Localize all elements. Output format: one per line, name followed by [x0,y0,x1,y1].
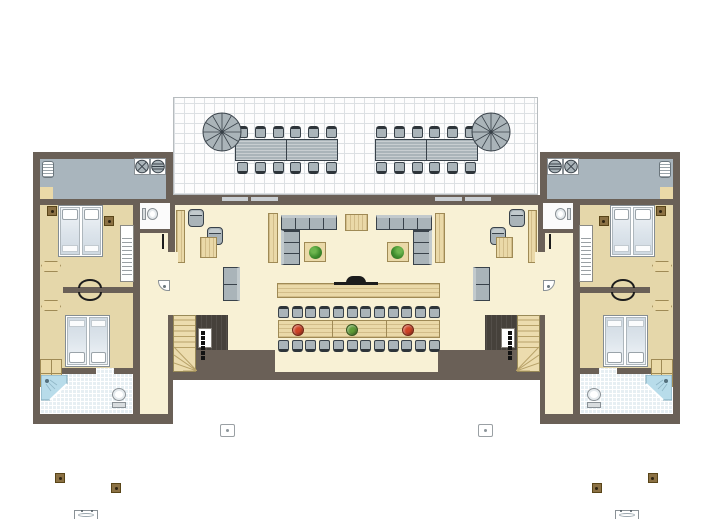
bed-foot [636,245,652,252]
floor-plan [0,0,713,519]
toilet-bowl [587,388,601,401]
bistro-table-icon [547,158,563,175]
nightstand [599,216,609,226]
nightstand [648,473,658,483]
toilet-icon [555,208,571,220]
mattress [612,207,632,255]
bathroom-door-opening [599,368,617,374]
nightstand [592,483,602,493]
wardrobe [579,225,593,282]
mattress [634,207,654,255]
mattress [627,317,647,365]
toilet-tank [587,402,601,408]
corridor-floor [545,233,573,414]
bed-foot [614,245,630,252]
pillow-icon [636,209,652,220]
mattress [605,317,625,365]
double-bed [610,205,655,257]
toilet-tank [567,208,571,220]
sink-icon [615,510,639,519]
chair-icon [652,261,672,272]
pillow-icon [607,352,623,363]
pillow-icon [614,209,630,220]
wardrobe-shelves [581,235,591,275]
bedroom-wing-group [0,0,713,519]
radiator-icon [659,161,671,178]
bed-foot [629,320,645,327]
chair-icon [652,300,672,311]
pillow-icon [629,352,645,363]
folding-chair-icon [563,158,579,175]
toilet-bowl [555,208,566,220]
double-bed [603,315,648,367]
nightstand [656,206,666,216]
door-leaf-icon [549,234,551,249]
toilet-icon [587,388,601,408]
balcony-step [660,187,673,199]
bed-foot [607,320,623,327]
shower-icon [645,375,672,401]
